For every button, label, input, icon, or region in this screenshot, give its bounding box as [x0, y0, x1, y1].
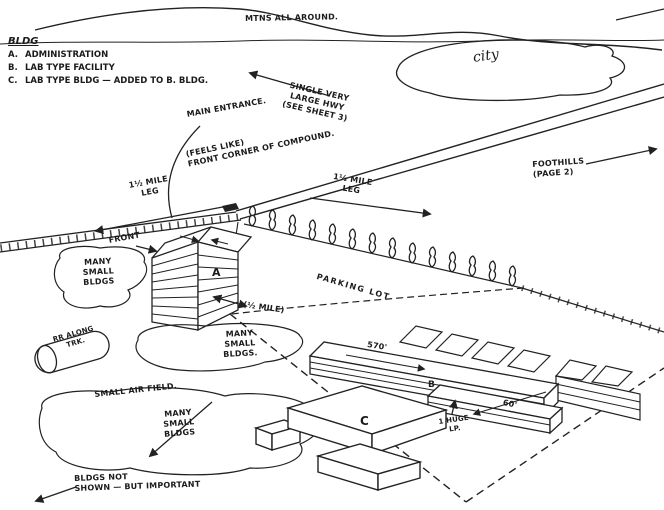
legend: BLDG A. ADMINISTRATION B. LAB TYPE FACIL… — [8, 36, 208, 86]
legend-item-c: C. LAB TYPE BLDG — ADDED TO B. BLDG. — [8, 76, 208, 86]
legend-key-c: C. — [8, 76, 18, 86]
legend-item-a: A. ADMINISTRATION — [8, 50, 208, 60]
label-building-a: A — [212, 266, 221, 280]
label-building-b: B — [428, 380, 435, 391]
small-bldgs-blob-center — [136, 324, 303, 371]
building-c — [256, 386, 446, 490]
label-many-small-center: MANY SMALL BLDGS. — [222, 328, 258, 360]
tree-lined-road — [244, 224, 522, 288]
arrow-foothills — [586, 149, 656, 164]
label-many-small-bottom: MANY SMALL BLDGS — [162, 407, 196, 440]
site-sketch: BLDG A. ADMINISTRATION B. LAB TYPE FACIL… — [0, 0, 664, 510]
label-many-small-left: MANY SMALL BLDGS — [82, 256, 115, 288]
label-foothills: FOOTHILLS (PAGE 2) — [532, 156, 585, 180]
legend-key-a: A. — [8, 50, 18, 60]
arrow-front — [136, 246, 156, 251]
arrow-not-shown — [36, 487, 76, 501]
legend-item-b: B. LAB TYPE FACILITY — [8, 63, 208, 73]
legend-name-a: ADMINISTRATION — [25, 50, 108, 60]
entrance-bracket — [169, 126, 201, 218]
compound-fence — [230, 222, 664, 502]
tree-row — [249, 206, 515, 286]
arrow-right-leg — [310, 198, 430, 214]
legend-name-c: LAB TYPE BLDG — ADDED TO B. BLDG. — [25, 76, 208, 86]
label-mountains: MTNS ALL AROUND. — [245, 12, 338, 24]
legend-name-b: LAB TYPE FACILITY — [25, 63, 115, 73]
city-outline — [397, 40, 625, 100]
legend-key-b: B. — [8, 63, 18, 73]
legend-heading: BLDG — [8, 36, 208, 47]
building-a — [152, 227, 251, 330]
label-building-c: C — [360, 414, 369, 429]
